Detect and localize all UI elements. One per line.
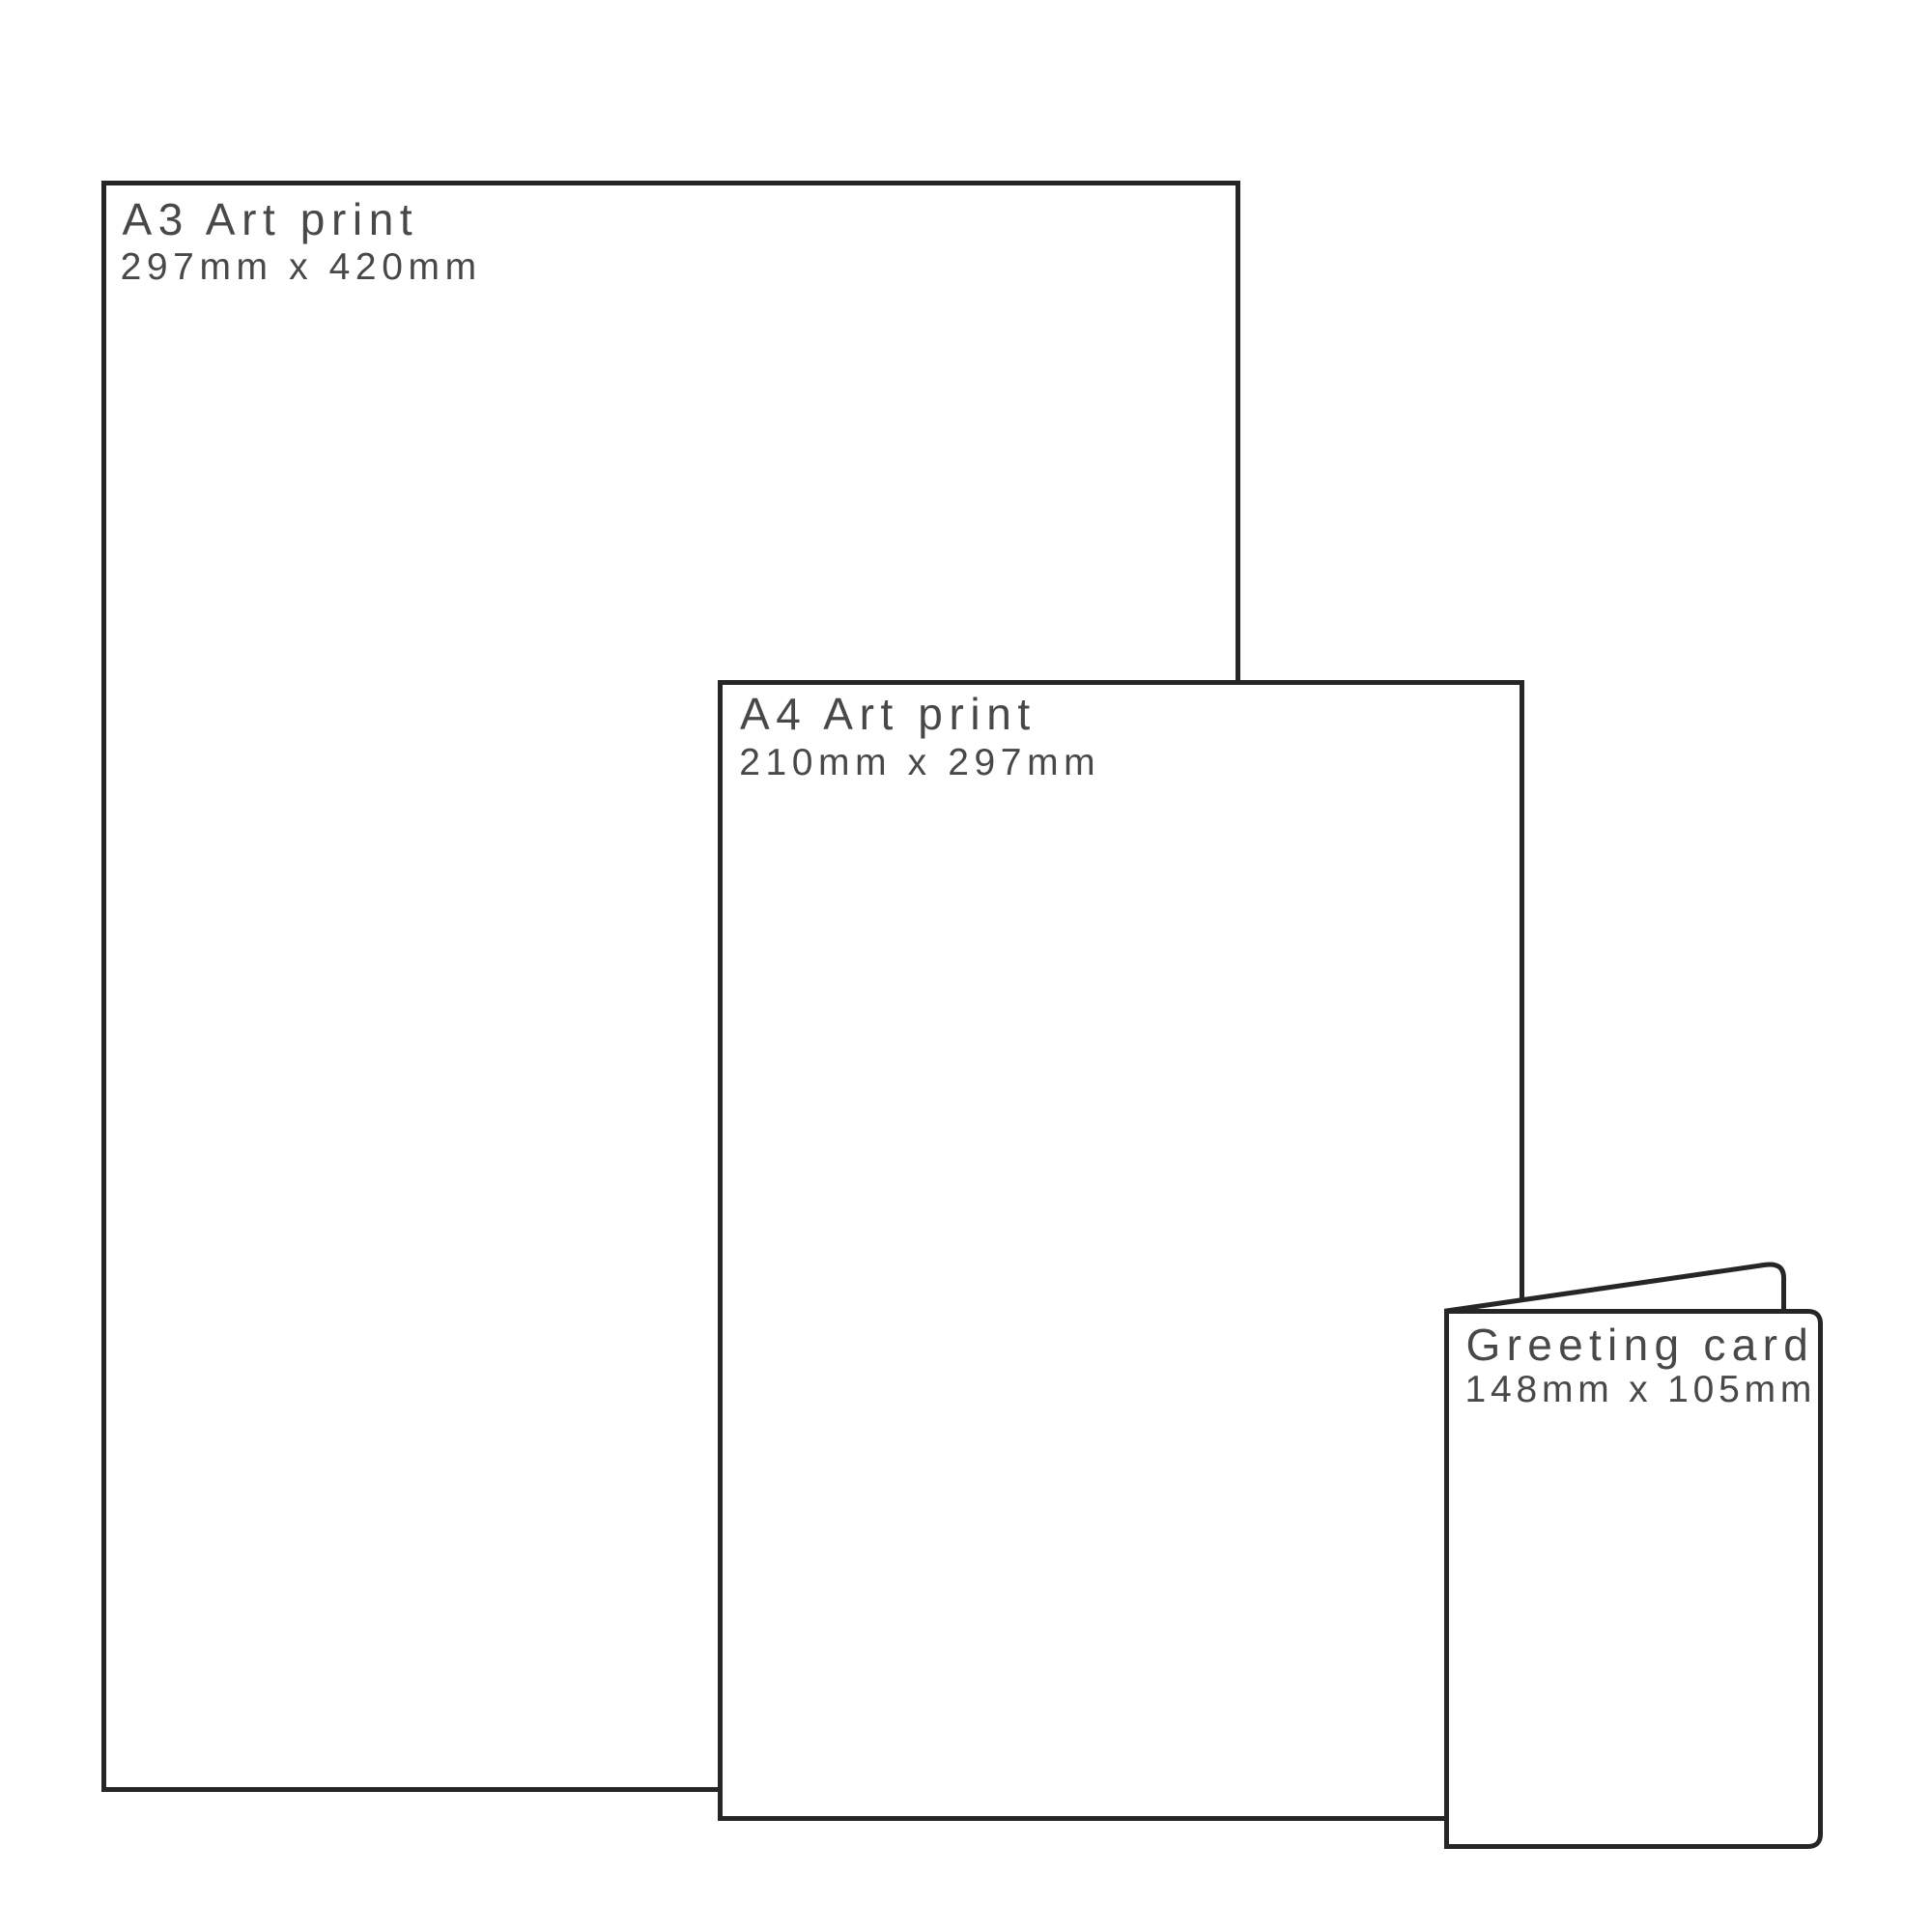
svg-text:148mm x 105mm: 148mm x 105mm	[1465, 1369, 1817, 1410]
svg-text:210mm x 297mm: 210mm x 297mm	[739, 742, 1100, 783]
svg-text:Greeting card: Greeting card	[1466, 1320, 1815, 1370]
svg-text:A4 Art print: A4 Art print	[740, 689, 1037, 739]
svg-text:297mm x 420mm: 297mm x 420mm	[121, 246, 482, 288]
svg-text:A3 Art print: A3 Art print	[123, 194, 419, 244]
